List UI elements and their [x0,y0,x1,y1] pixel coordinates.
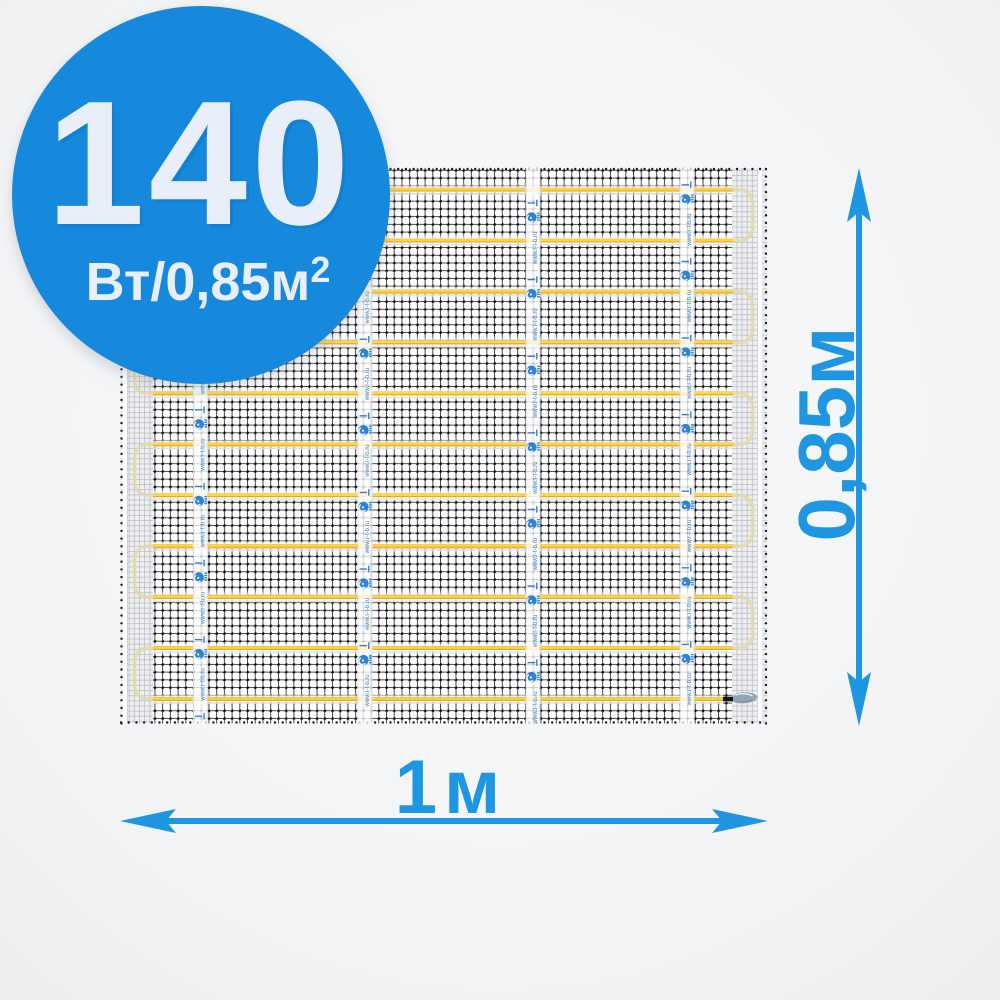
svg-text:1м: 1м [395,745,508,830]
svg-text:140: 140 [46,64,353,262]
svg-text:Вт/0,85м2: Вт/0,85м2 [86,249,331,312]
svg-text:0,85м: 0,85м [782,327,871,542]
